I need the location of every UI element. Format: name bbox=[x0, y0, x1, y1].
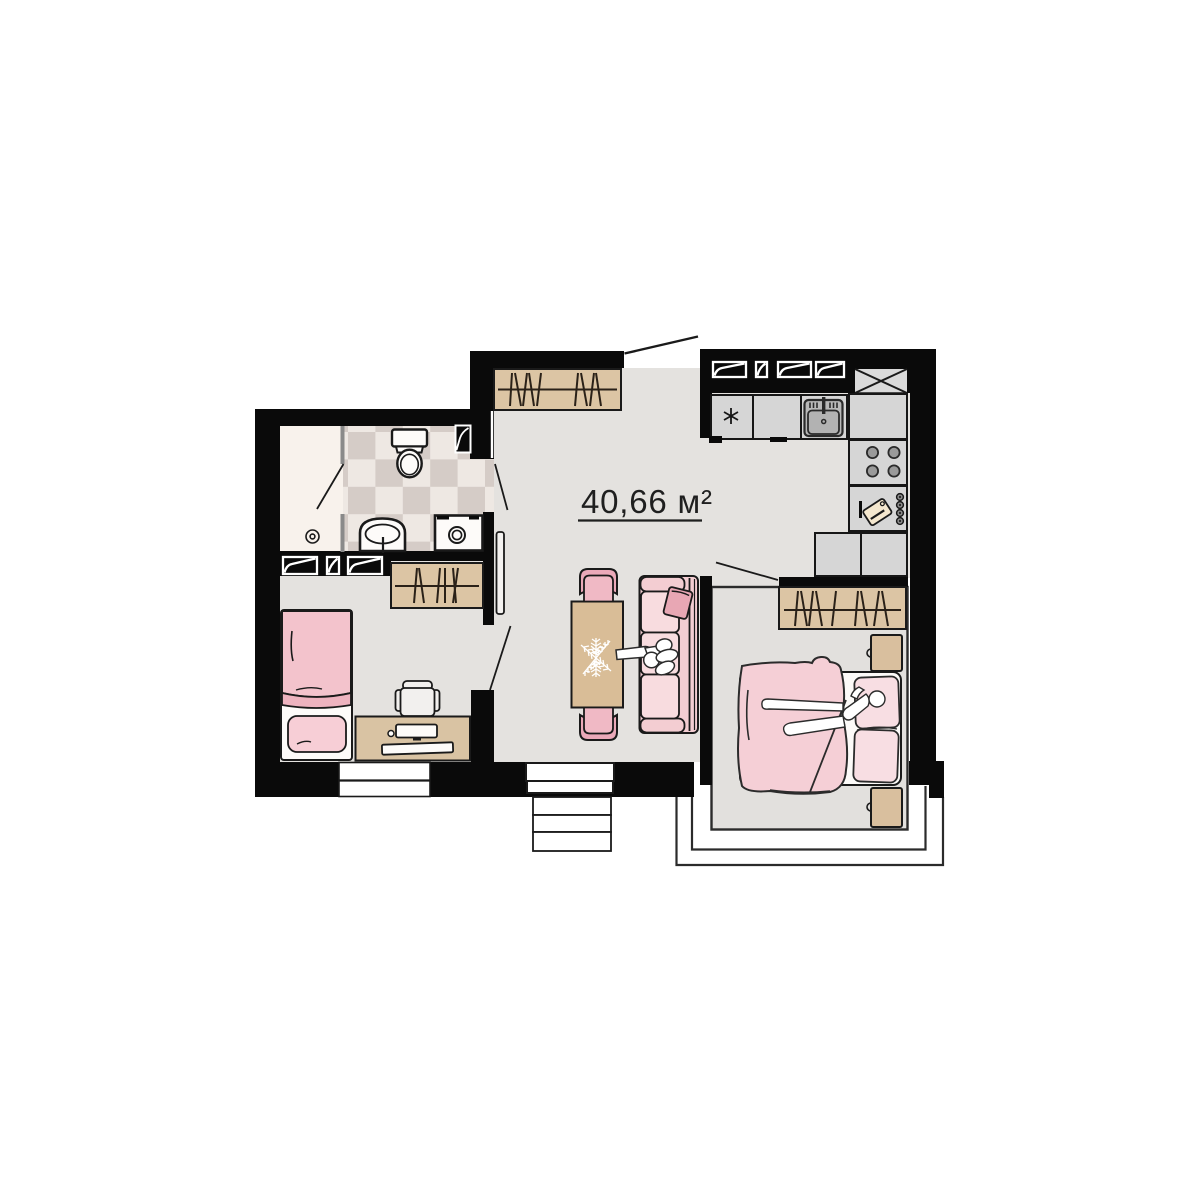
svg-text:40,66 м²: 40,66 м² bbox=[581, 483, 713, 520]
